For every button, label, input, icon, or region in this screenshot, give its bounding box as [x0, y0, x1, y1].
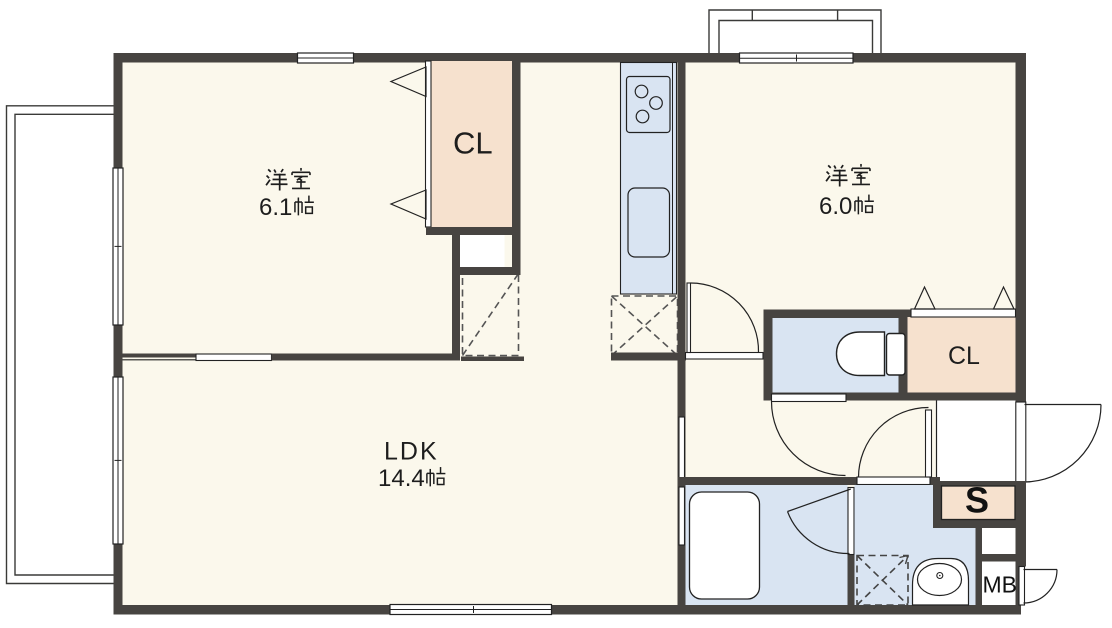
- svg-text:S: S: [965, 480, 989, 521]
- svg-text:MB: MB: [983, 572, 1018, 598]
- svg-text:CL: CL: [948, 342, 980, 370]
- svg-text:14.4: 14.4: [378, 465, 425, 492]
- svg-text:6.1: 6.1: [259, 194, 292, 221]
- svg-text:CL: CL: [453, 126, 493, 161]
- svg-text:LDK: LDK: [384, 438, 439, 466]
- svg-text:6.0: 6.0: [819, 193, 852, 220]
